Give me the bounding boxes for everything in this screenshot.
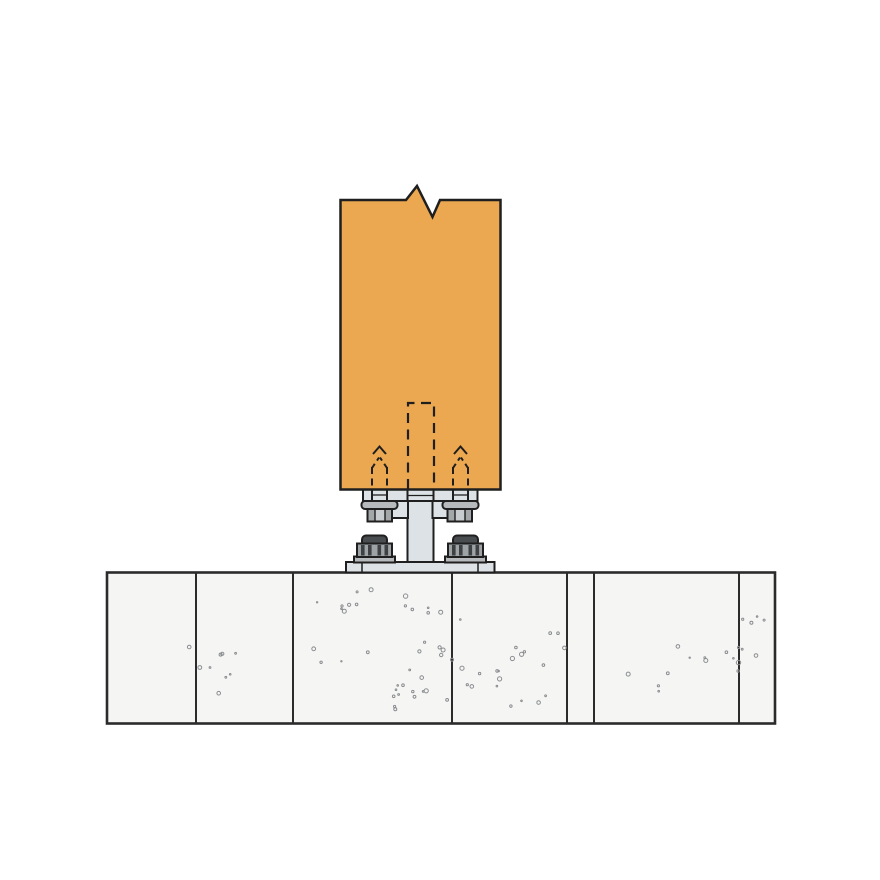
- anchor-rib: [378, 545, 382, 556]
- illustration-canvas: [0, 0, 880, 880]
- post-base-bracket: [346, 490, 495, 573]
- anchor-rib: [476, 545, 480, 556]
- anchor-rib: [361, 545, 365, 556]
- anchor-rib: [469, 545, 473, 556]
- hex-head-side: [465, 510, 471, 521]
- hex-head-side: [369, 510, 375, 521]
- concrete-foundation: [107, 573, 775, 724]
- anchor-nut-left: [354, 536, 395, 563]
- hex-bolt-right: [443, 501, 479, 522]
- base-plate: [346, 562, 495, 573]
- hex-head-side: [385, 510, 391, 521]
- anchor-rib: [368, 545, 372, 556]
- post-base-diagram: [0, 0, 880, 880]
- bolt-washer-right: [443, 501, 479, 509]
- anchor-rib: [385, 545, 389, 556]
- anchor-nut-right: [445, 536, 486, 563]
- anchor-rib: [452, 545, 456, 556]
- bolt-washer-left: [362, 501, 398, 509]
- wood-post-body: [341, 186, 501, 490]
- anchor-rib: [459, 545, 463, 556]
- wood-post: [341, 186, 501, 490]
- pedestal-stem: [408, 501, 434, 564]
- hex-bolt-left: [362, 501, 398, 522]
- hex-head-side: [449, 510, 455, 521]
